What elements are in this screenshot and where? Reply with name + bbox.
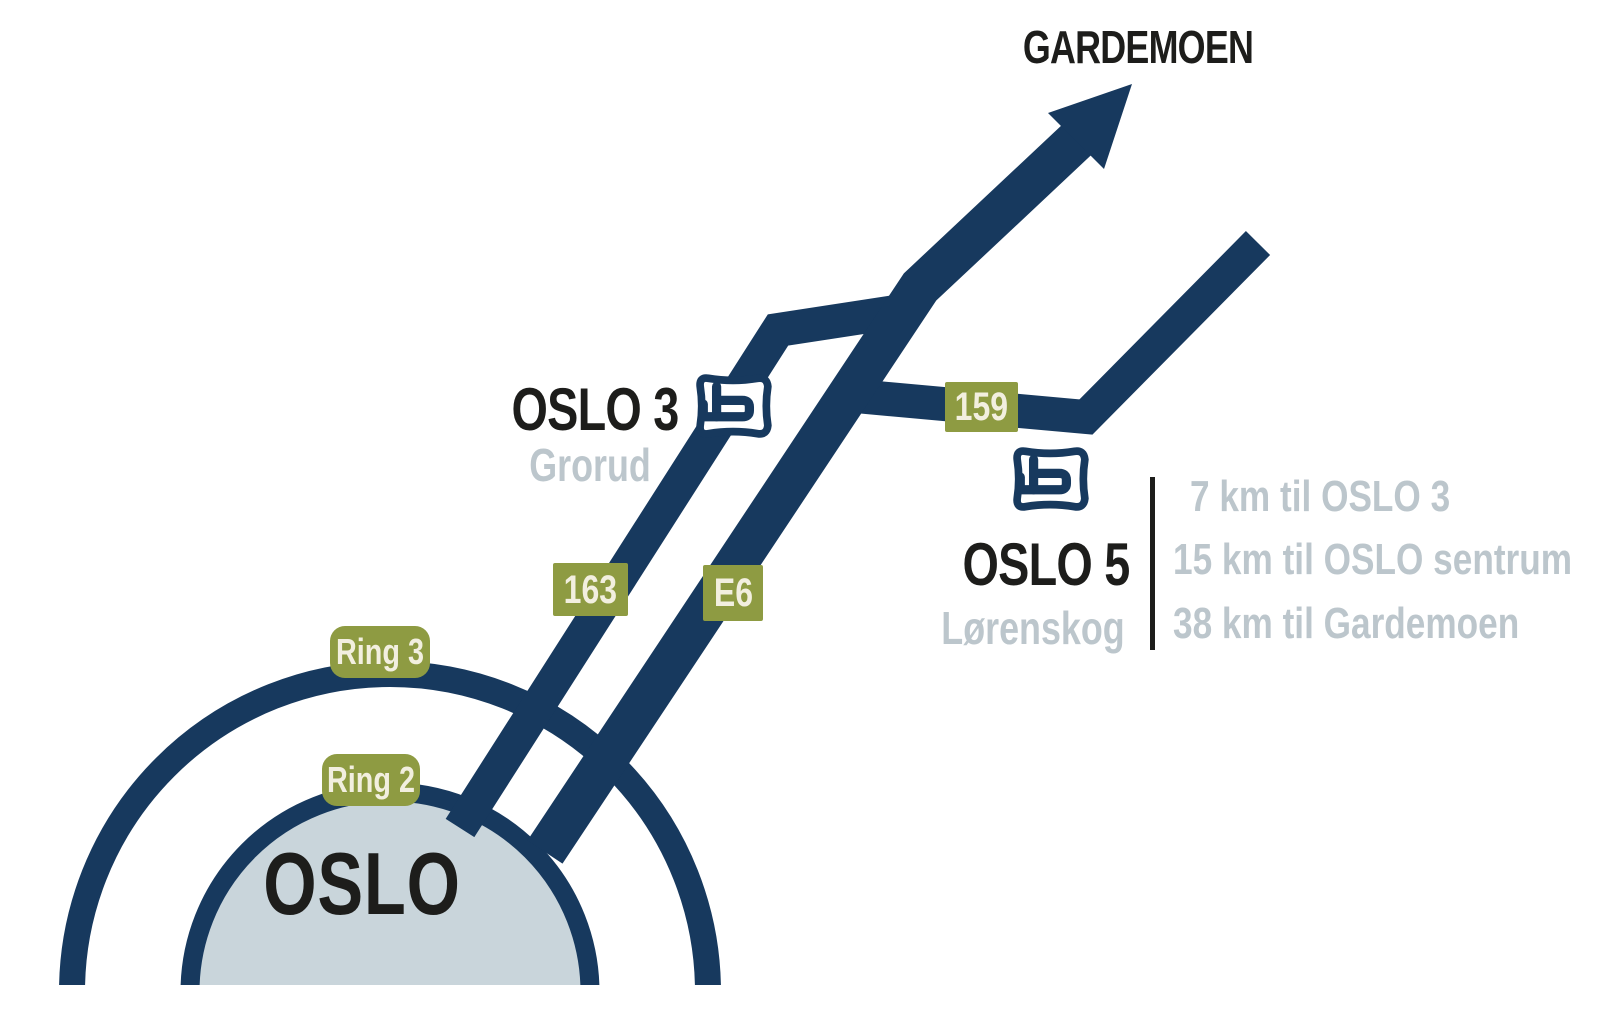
distance-to-gardemoen: 38 km til Gardemoen: [1173, 602, 1519, 646]
oslo3-subtitle: Grorud: [529, 442, 651, 488]
road-badge-159: 159: [945, 382, 1018, 432]
road-badge-163: 163: [553, 563, 628, 616]
oslo3-title: OSLO 3: [512, 380, 679, 440]
ring2-badge-label: Ring 2: [327, 762, 415, 798]
road-badge-e6-label: E6: [713, 573, 752, 613]
b-brand-logo-icon: [692, 373, 774, 439]
ring3-badge-label: Ring 3: [336, 634, 424, 670]
road-e6: [545, 134, 1083, 852]
oslo5-title: OSLO 5: [963, 535, 1130, 595]
ring3-badge: Ring 3: [330, 626, 430, 678]
oslo5-subtitle: Lørenskog: [941, 605, 1124, 651]
oslo-route-map: GARDEMOEN OSLO 3 Grorud OSLO 5 Lørenskog…: [0, 0, 1602, 1016]
distance-to-oslo-sentrum: 15 km til OSLO sentrum: [1173, 538, 1572, 582]
distance-to-oslo3: 7 km til OSLO 3: [1190, 475, 1450, 519]
distance-divider: [1150, 477, 1155, 650]
b-brand-logo-icon: [1009, 446, 1091, 512]
road-badge-163-label: 163: [564, 570, 617, 610]
gardemoen-label: GARDEMOEN: [1023, 24, 1253, 70]
oslo-city-label: OSLO: [263, 840, 461, 928]
road-badge-159-label: 159: [955, 387, 1008, 427]
road-badge-e6: E6: [703, 565, 763, 621]
ring2-badge: Ring 2: [322, 754, 420, 806]
